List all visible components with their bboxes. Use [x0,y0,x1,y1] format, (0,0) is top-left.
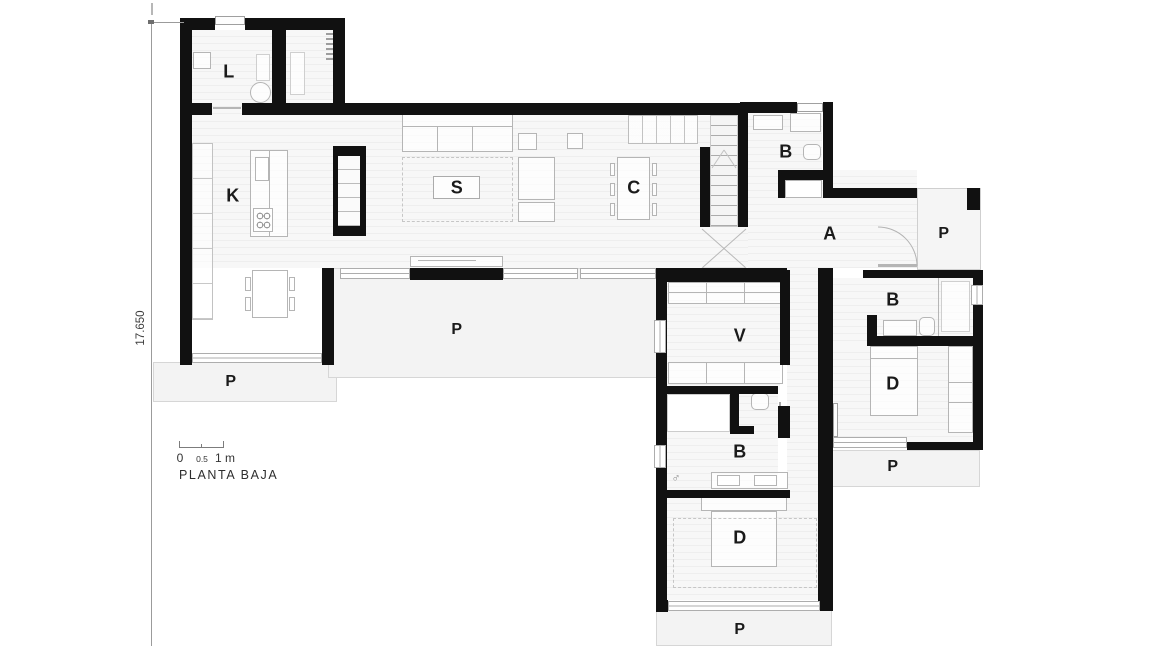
pantry-cabinet [628,115,698,144]
scale-half: 0.5 [196,454,208,464]
wardrobe-divider [744,282,745,304]
shower-room [667,394,730,432]
dimension-tick-mark [148,20,154,24]
scale-zero: 0 [177,451,184,465]
wall-annex-left [180,18,192,115]
bath-top-shower [790,113,821,132]
room-label-dining: C [627,178,641,199]
dining-chair [652,163,657,176]
wall-bath-wing-right [778,406,790,438]
room-label-porch-central: P [451,321,462,339]
porch-kitchen [153,362,337,402]
wardrobe-divider [744,362,745,384]
dining-chair [652,203,657,216]
kitchen-counter [192,143,213,320]
hall-closet [785,180,822,198]
room-label-bath-wing: B [733,442,747,463]
wall-bath-right-partition [867,315,877,336]
bath-wing-sink [754,475,777,486]
window-bath-right-east [971,285,983,305]
male-symbol: ♂ [672,471,681,485]
closet-right-divider [948,382,973,383]
kitchen-chair [289,277,295,291]
floor-hall-right [833,278,867,346]
room-label-laundry: L [223,62,235,83]
window-living-south-3 [580,268,656,279]
bath-top-sink [753,115,783,130]
wall-bed-wing-corner [656,600,668,612]
wall-kitchen-right [322,268,334,365]
porch-bedroom-right [832,450,980,487]
wall-main-top [242,103,740,115]
wardrobe-bottom [668,362,783,384]
dining-chair [610,163,615,176]
room-label-bath-right: B [886,290,900,311]
window-bed-right-south [833,437,907,448]
wall-dressing-right [780,270,790,365]
wardrobe-top [668,282,783,304]
scalebar-tick-half [201,444,202,448]
bed-right-pillow-line [870,358,918,359]
room-label-kitchen: K [226,186,240,207]
bath-top-toilet [803,144,821,160]
room-label-porch-wing: P [734,621,745,639]
wall-dressing-bath [667,386,778,394]
wall-stairs-right [738,105,748,227]
stair-treads [710,115,738,227]
sofa [402,113,513,152]
room-label-hall: A [823,224,837,245]
wall-below-bath-top [782,170,833,180]
wall-shower-partition-v [730,394,739,430]
wall-stairs-left [700,147,710,227]
window-living-south-1 [340,268,410,279]
kitchen-chair [245,297,251,311]
water-heater [250,82,271,103]
dimension-label: 17.650 [135,305,147,351]
lounge-chair [518,157,555,200]
plan-title: PLANTA BAJA [179,468,278,482]
wardrobe-divider [706,282,707,304]
tv-bench-line [418,260,476,261]
window-bath-wing-west [654,445,666,468]
ottoman [518,202,555,222]
room-label-porch-right: P [887,458,898,476]
wall-corridor-east [818,268,833,611]
bath-wing-sink [717,475,740,486]
wall-hall-top [833,188,917,198]
door-bed-right-leaf [833,403,838,437]
bath-right-toilet [919,317,935,336]
wall-porch-entry-corner [967,188,980,210]
room-label-bed-right: D [886,374,900,395]
bath-right-divider [938,278,939,336]
bed-wing-headboard [701,497,787,511]
washing-machine [193,52,211,69]
wall-annex-top-right [245,18,345,30]
kitchen-sink [255,157,269,181]
kitchen-table [252,270,288,318]
wall-bath-wing-bottom [656,490,790,498]
window-bed-wing-south [668,601,820,611]
wall-bath-top-right [823,102,833,198]
wardrobe-divider [706,362,707,384]
porch-central [328,268,667,378]
closet-right [948,346,973,433]
bath-right-shower [941,281,970,332]
dining-chair [610,183,615,196]
floor-plan: 17.650 0 0.5 1 m PLANTA BAJA [0,0,1150,646]
wall-bed-right-bottom [907,442,973,450]
room-label-bed-wing: D [733,528,747,549]
wall-bath-top-top [740,102,797,113]
wall-shower-partition-h [730,426,754,434]
bath-wing-toilet [751,393,769,410]
floor-corridor [787,268,820,497]
kitchen-chair [245,277,251,291]
window-living-south-2 [503,268,578,279]
room-label-living: S [451,178,464,199]
side-table [518,133,537,150]
kitchen-hob [253,208,273,232]
tv-bench [410,256,503,267]
vent-louvers [326,33,333,61]
wall-bath-right-bottom [867,336,973,346]
sofa-seat-divider [472,126,473,152]
scalebar-tick-1 [223,441,224,448]
door-laundry-exterior [215,16,245,25]
scalebar-tick-0 [179,441,180,448]
kitchen-chair [289,297,295,311]
wall-annex-middle [272,30,286,103]
wall-west [180,115,192,365]
wall-annex-right [333,30,345,103]
room-label-dressing: V [734,326,747,347]
wardrobe-rod [668,292,783,293]
door-laundry-kitchen-leaf [213,107,241,109]
dining-chair [652,183,657,196]
dimension-top-tick [151,3,153,15]
window-dressing-west [654,320,666,353]
sofa-back-line [402,126,513,127]
window-kitchen-south [192,353,322,363]
wall-main-top-left [180,103,212,115]
small-table [567,133,583,149]
wall-rightwing-top [863,270,977,278]
door-entry-leaf [878,264,917,267]
sofa-seat-divider [437,126,438,152]
bath-right-vanity [883,320,917,336]
scale-one: 1 m [215,451,235,465]
laundry-shelf [256,54,270,81]
room-label-porch-kitchen: P [225,373,236,391]
room-label-bath-top: B [779,142,793,163]
wall-living-south-mid [410,268,503,280]
door-bath-top-exterior [797,103,823,112]
fireplace-shelves [338,156,360,226]
wall-dressing-top [656,270,780,280]
dining-chair [610,203,615,216]
room-label-porch-entry: P [938,225,949,243]
wall-closet-post [778,170,785,198]
storage-table [290,52,305,95]
closet-right-divider [948,402,973,403]
dimension-line-vertical [151,22,152,646]
